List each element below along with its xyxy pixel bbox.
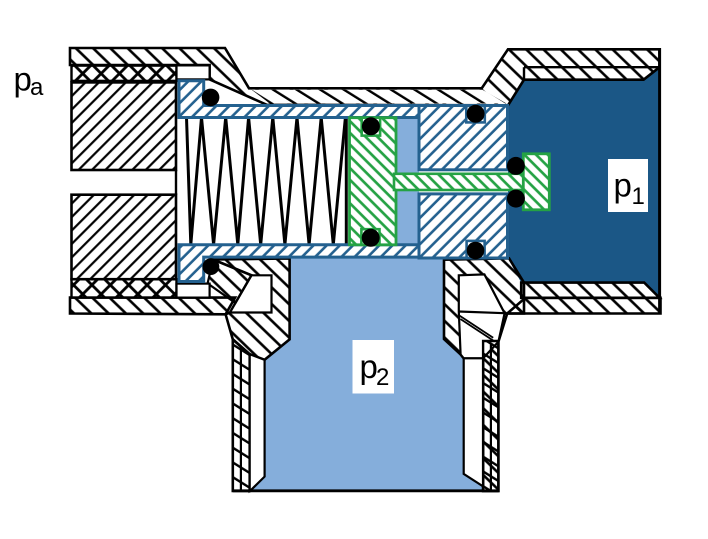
- svg-text:2: 2: [376, 364, 389, 391]
- svg-text:a: a: [30, 74, 44, 101]
- svg-text:1: 1: [632, 183, 645, 210]
- svg-text:p: p: [614, 167, 632, 204]
